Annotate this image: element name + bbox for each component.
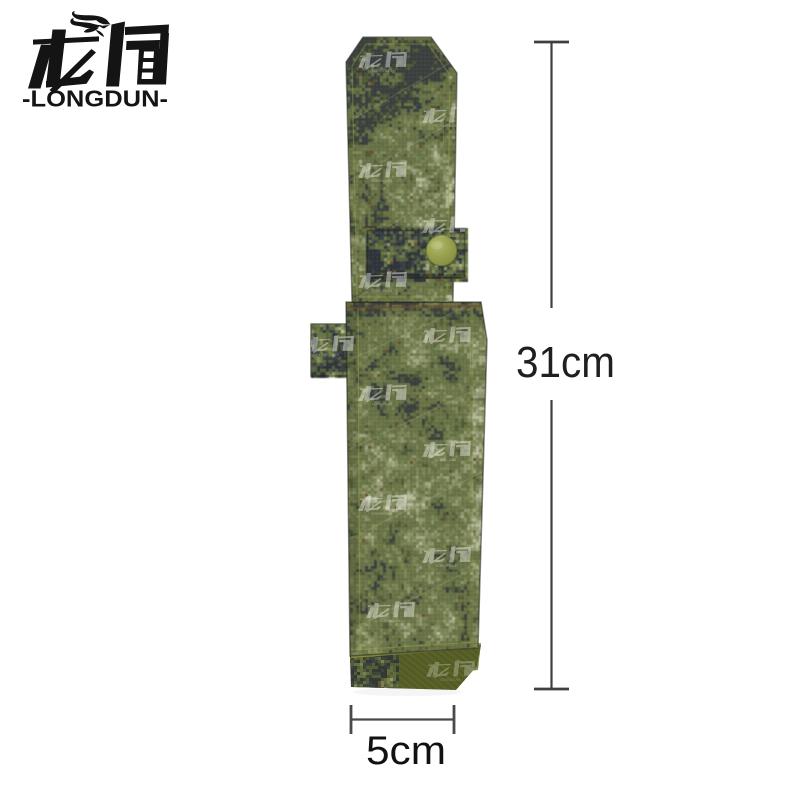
svg-text:31cm: 31cm: [516, 338, 615, 387]
svg-text:-LONGDUN-: -LONGDUN-: [22, 86, 168, 112]
svg-text:5cm: 5cm: [366, 729, 446, 773]
